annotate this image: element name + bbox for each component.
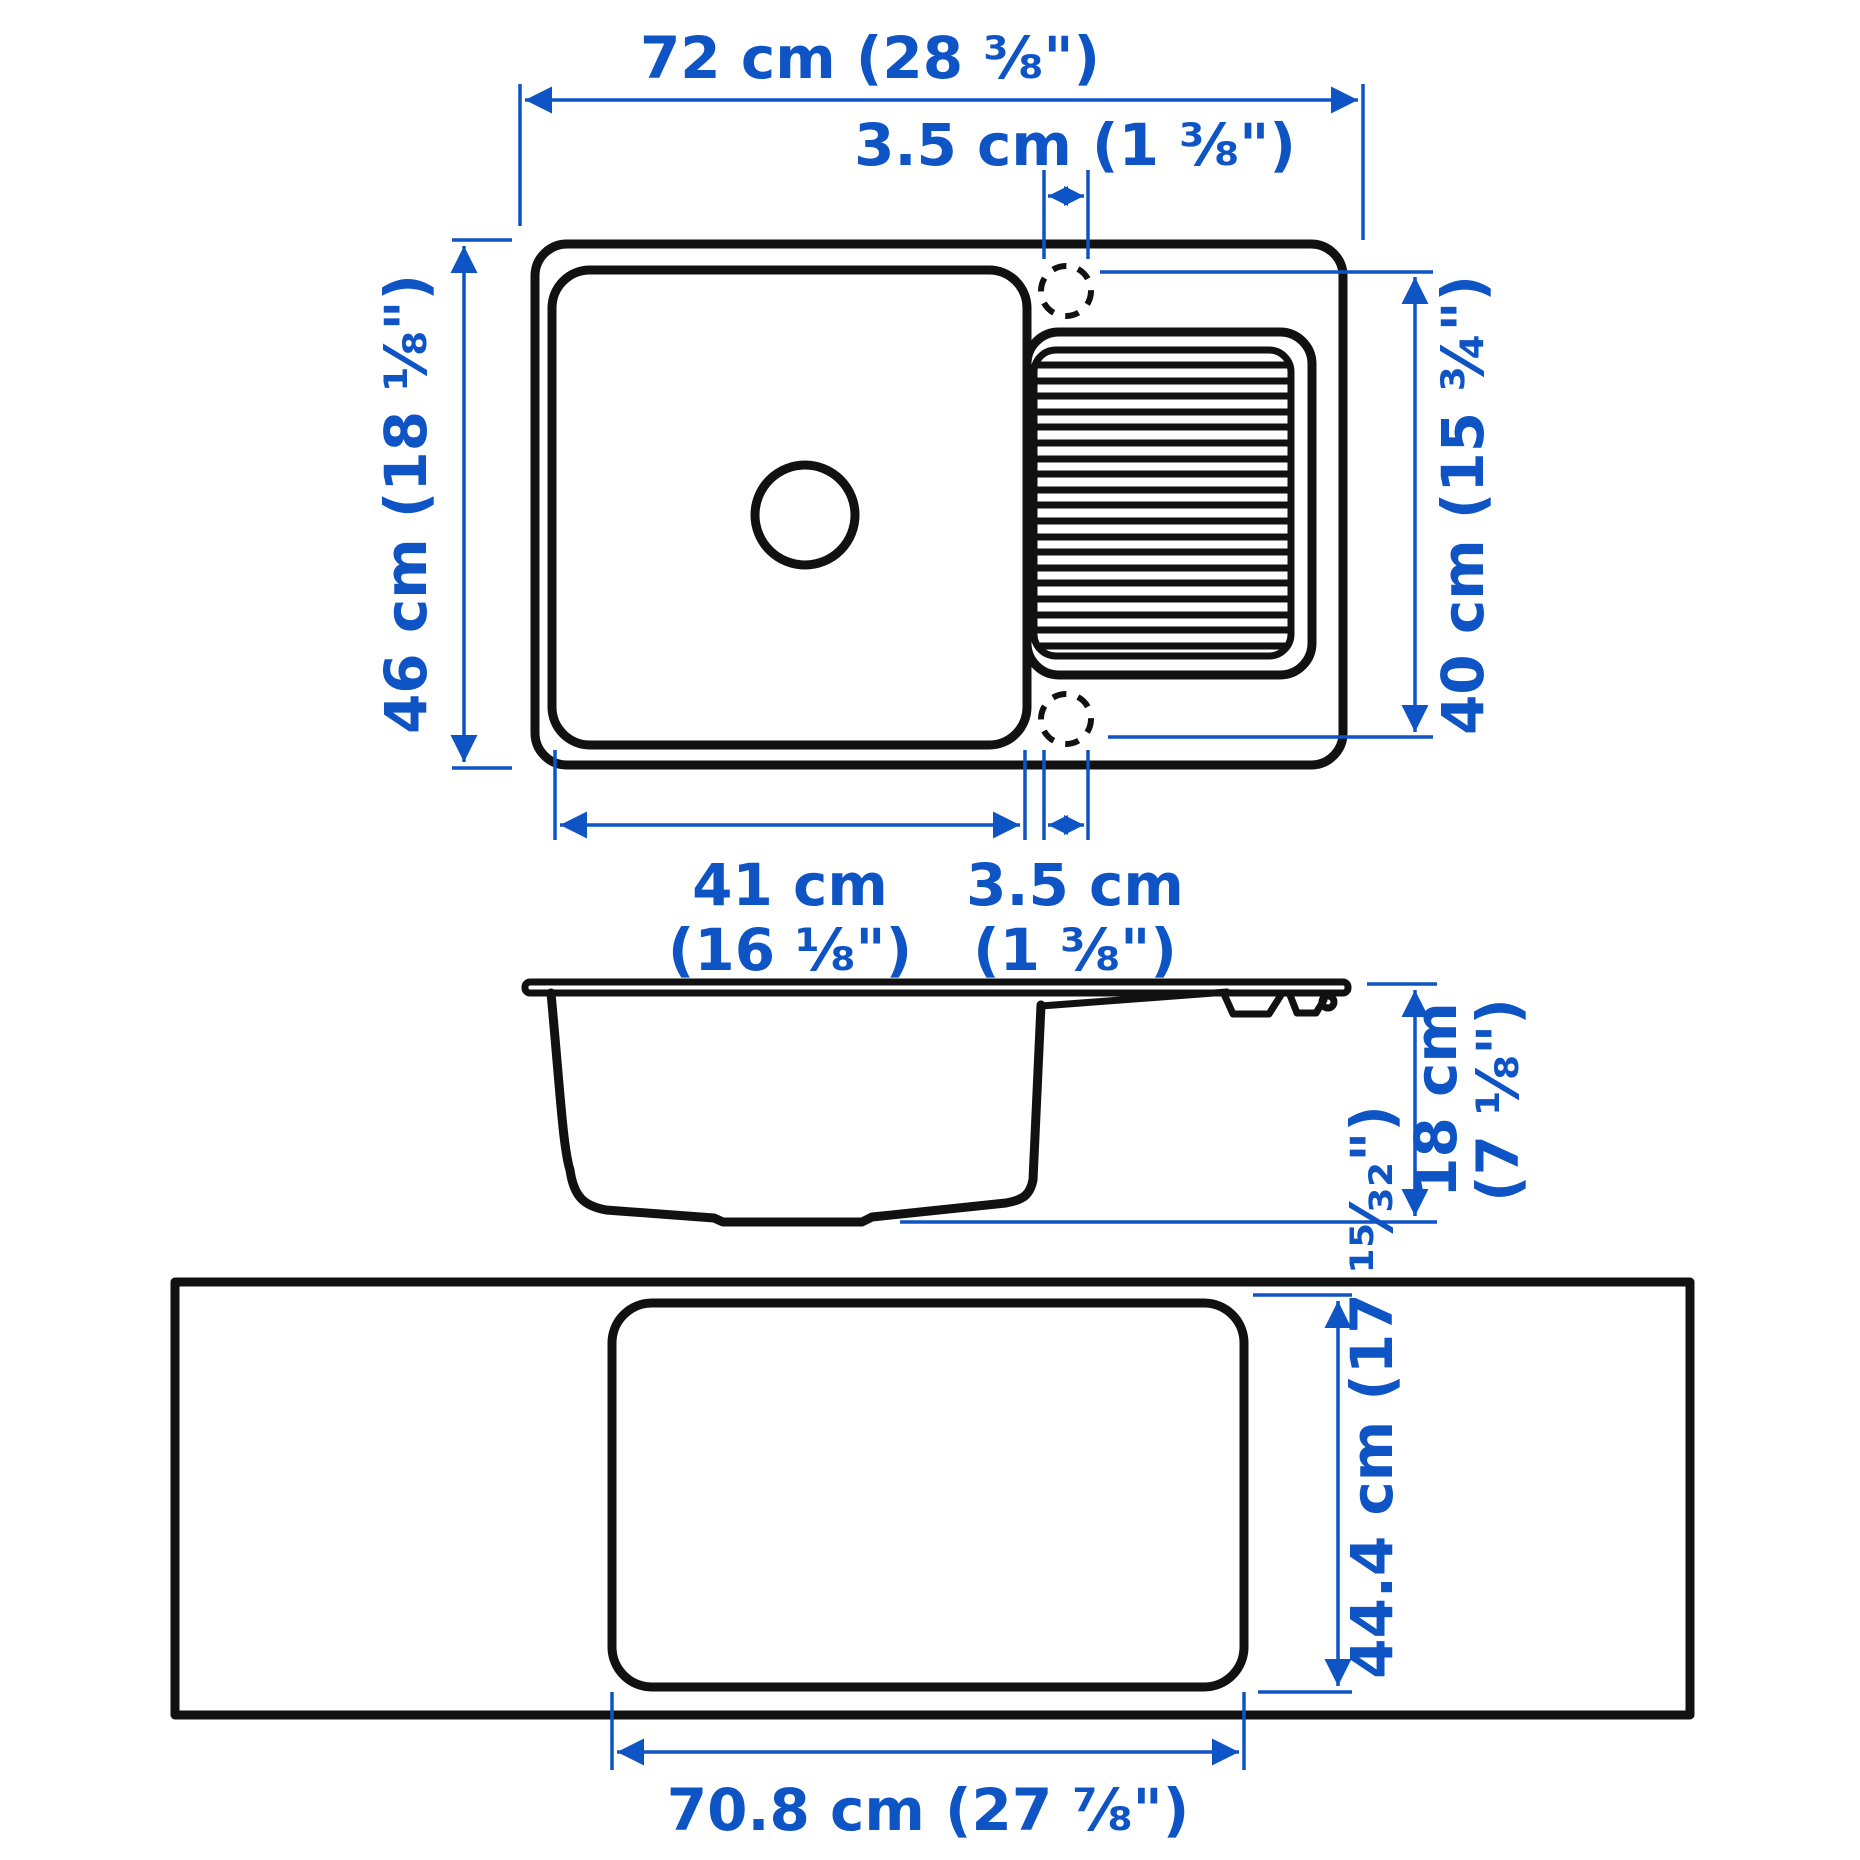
cutout-depth-label: 44.4 cm (17 ¹⁵⁄₃₂") (1338, 1105, 1406, 1679)
dim-cutout-depth: 44.4 cm (17 ¹⁵⁄₃₂") (1253, 1105, 1406, 1692)
faucet-hole-bottom (1041, 694, 1091, 744)
drain-hole (755, 465, 855, 565)
faucet-hole-top (1041, 266, 1091, 316)
mounting-clip-curl (1322, 996, 1334, 1008)
dim-overall-depth: 46 cm (18 ⅛") (372, 240, 512, 768)
height-label-line2: (7 ⅛") (1464, 998, 1532, 1202)
bowl-profile (551, 993, 1041, 1222)
bowl-width-label-line2: (16 ⅛") (668, 916, 912, 984)
overall-width-label: 72 cm (28 ⅜") (640, 24, 1100, 92)
cutout-width-label: 70.8 cm (27 ⅞") (667, 1776, 1189, 1844)
drainboard-ridges (1030, 350, 1295, 656)
mounting-clip-left (1224, 994, 1281, 1014)
top-view (535, 244, 1343, 765)
cutout-outline (612, 1303, 1244, 1687)
faucet-offset-bottom-label-line2: (1 ⅜") (973, 916, 1177, 984)
drainboard-ridge-lines (1030, 365, 1295, 646)
faucet-offset-bottom-label-line1: 3.5 cm (966, 851, 1184, 919)
drainboard-depth-label: 40 cm (15 ¾") (1429, 275, 1497, 735)
overall-depth-label: 46 cm (18 ⅛") (372, 274, 440, 734)
cutout-view (175, 1282, 1690, 1715)
dim-height: 18 cm (7 ⅛") (900, 984, 1532, 1222)
bowl-width-label-line1: 41 cm (692, 851, 888, 919)
height-label-line1: 18 cm (1402, 1002, 1470, 1198)
dim-faucet-offset-bottom: 3.5 cm (1 ⅜") (966, 750, 1184, 984)
side-view (525, 982, 1348, 1222)
countertop-outline (175, 1282, 1690, 1715)
sink-dimension-diagram-page: 72 cm (28 ⅜") 3.5 cm (1 ⅜") 46 cm (18 ⅛"… (0, 0, 1860, 1860)
dim-faucet-offset-top: 3.5 cm (1 ⅜") (854, 111, 1296, 259)
sink-dimension-diagram: 72 cm (28 ⅜") 3.5 cm (1 ⅜") 46 cm (18 ⅛"… (0, 0, 1860, 1860)
faucet-offset-top-label: 3.5 cm (1 ⅜") (854, 111, 1296, 179)
dim-bowl-width: 41 cm (16 ⅛") (555, 750, 1025, 984)
sink-bowl (552, 270, 1027, 745)
